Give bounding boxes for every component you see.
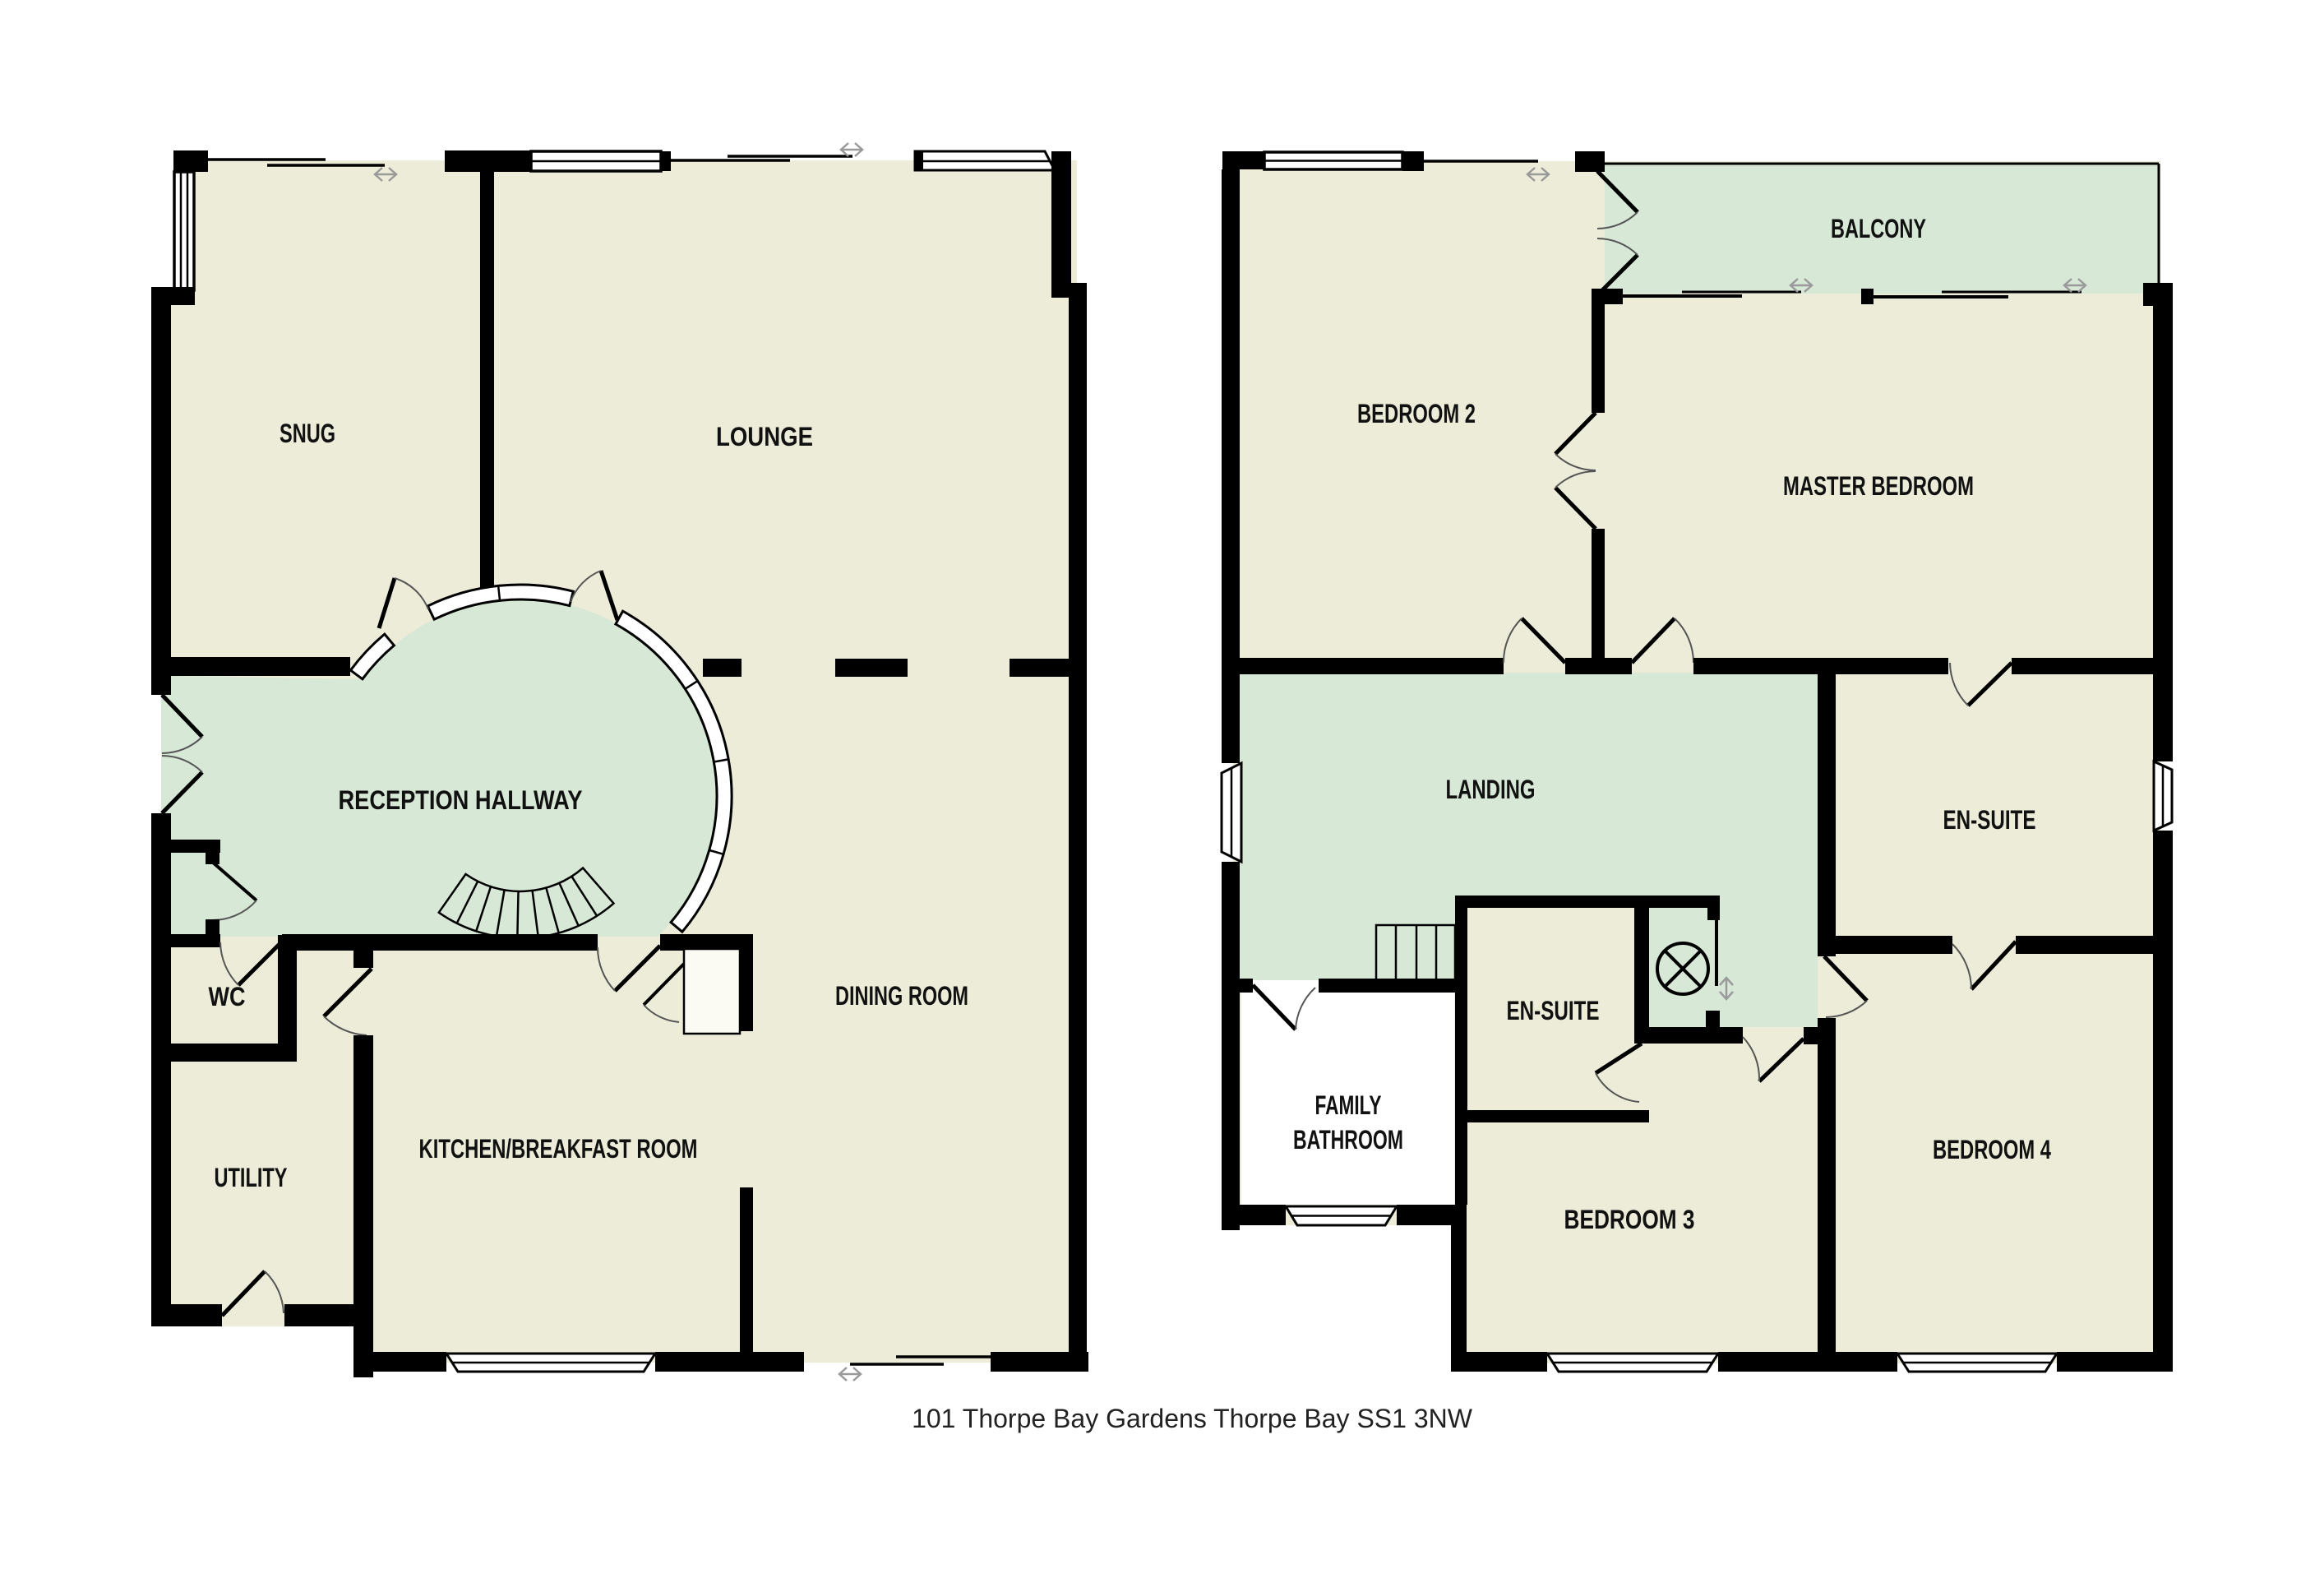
svg-text:DINING ROOM: DINING ROOM bbox=[835, 981, 968, 1011]
svg-text:KITCHEN/BREAKFAST ROOM: KITCHEN/BREAKFAST ROOM bbox=[419, 1134, 698, 1164]
svg-text:101 Thorpe Bay Gardens Thorpe: 101 Thorpe Bay Gardens Thorpe Bay SS1 3N… bbox=[912, 1404, 1473, 1433]
svg-text:WC: WC bbox=[209, 982, 246, 1011]
svg-text:LANDING: LANDING bbox=[1446, 775, 1536, 804]
svg-text:SNUG: SNUG bbox=[280, 419, 335, 448]
svg-text:EN-SUITE: EN-SUITE bbox=[1943, 805, 2036, 835]
svg-text:LOUNGE: LOUNGE bbox=[716, 422, 813, 451]
svg-text:EN-SUITE: EN-SUITE bbox=[1507, 996, 1600, 1025]
svg-text:MASTER BEDROOM: MASTER BEDROOM bbox=[1783, 471, 1974, 501]
svg-text:BEDROOM 3: BEDROOM 3 bbox=[1564, 1205, 1695, 1234]
svg-text:BEDROOM 4: BEDROOM 4 bbox=[1933, 1135, 2051, 1164]
svg-text:BALCONY: BALCONY bbox=[1831, 214, 1926, 243]
svg-text:FAMILY: FAMILY bbox=[1315, 1090, 1382, 1120]
svg-text:BEDROOM 2: BEDROOM 2 bbox=[1357, 399, 1476, 428]
svg-text:BATHROOM: BATHROOM bbox=[1293, 1125, 1403, 1155]
svg-text:RECEPTION HALLWAY: RECEPTION HALLWAY bbox=[339, 785, 583, 815]
svg-text:UTILITY: UTILITY bbox=[215, 1163, 288, 1192]
